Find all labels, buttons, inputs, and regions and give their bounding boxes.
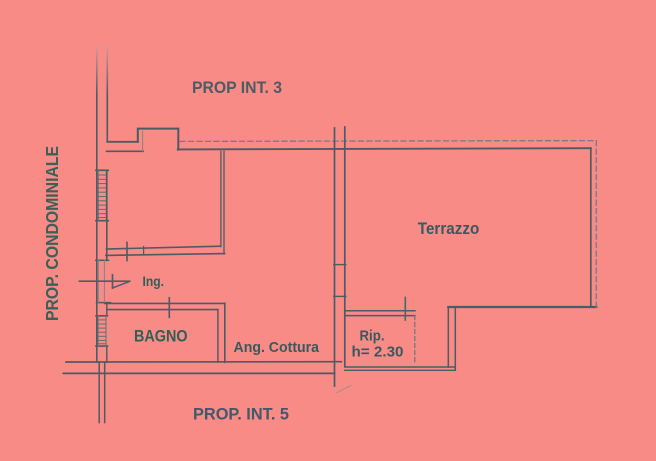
svg-text:PROP. INT. 5: PROP. INT. 5 (193, 406, 289, 424)
svg-text:Ing.: Ing. (143, 273, 165, 289)
svg-text:Rip.: Rip. (360, 329, 385, 345)
svg-text:h= 2.30: h= 2.30 (352, 345, 404, 361)
svg-text:PROP INT. 3: PROP INT. 3 (192, 79, 282, 97)
svg-text:PROP. CONDOMINIALE: PROP. CONDOMINIALE (42, 146, 62, 321)
svg-text:Ang. Cottura: Ang. Cottura (234, 340, 320, 356)
svg-text:BAGNO: BAGNO (134, 327, 188, 346)
svg-text:Terrazzo: Terrazzo (418, 220, 480, 238)
